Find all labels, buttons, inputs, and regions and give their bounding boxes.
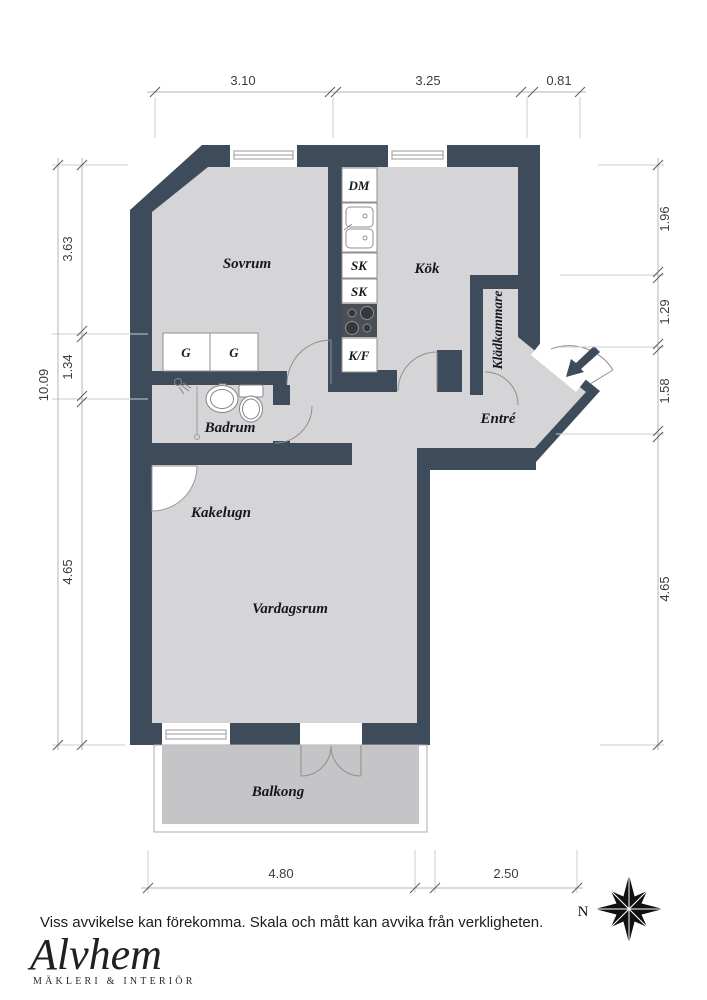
- label-sk1: SK: [351, 258, 368, 273]
- compass-north-label: N: [578, 904, 589, 920]
- stove-icon: [342, 304, 377, 337]
- floorplan-page: Sovrum Kök Badrum Entré Vardagsrum Balko…: [0, 0, 707, 1000]
- wall-bedroom-kitchen: [328, 167, 342, 392]
- dim-left-2: 1.34: [60, 354, 75, 379]
- balcony-door-opening: [300, 723, 362, 745]
- bedroom-window-icon: [230, 145, 297, 167]
- label-g2: G: [229, 345, 239, 360]
- dim-left-1: 3.63: [60, 236, 75, 261]
- dim-bottom-1: 4.80: [268, 866, 293, 881]
- label-sk2: SK: [351, 284, 368, 299]
- compass-rose: N: [578, 875, 663, 943]
- badrum-door-opening: [273, 405, 290, 441]
- dim-left-total: 10.09: [36, 369, 51, 402]
- kitchen-sink-icon: [342, 203, 377, 252]
- wall-kladkammare-top: [470, 275, 540, 289]
- label-entre: Entré: [479, 411, 516, 427]
- livingroom-window-icon: [162, 723, 230, 745]
- label-kakelugn: Kakelugn: [190, 505, 251, 521]
- wall-entre-bottom: [417, 448, 536, 470]
- label-vardagsrum: Vardagsrum: [252, 601, 328, 617]
- dim-top-3: 0.81: [546, 73, 571, 88]
- label-balkong: Balkong: [251, 784, 305, 800]
- brand-logo: Alvhem: [27, 930, 162, 979]
- label-g1: G: [181, 345, 191, 360]
- wall-badrum-top: [152, 371, 287, 385]
- wall-kitchen-south: [330, 370, 397, 392]
- wall-entre-jamb: [437, 350, 462, 392]
- wardrobes: [163, 333, 258, 371]
- dim-right-4: 4.65: [657, 576, 672, 601]
- label-badrum: Badrum: [204, 420, 256, 436]
- dim-right-1: 1.96: [657, 206, 672, 231]
- wall-livingroom-top-left: [152, 443, 352, 465]
- brand-tagline: MÄKLERI & INTERIÖR: [33, 975, 196, 987]
- dim-right-2: 1.29: [657, 299, 672, 324]
- footer: Viss avvikelse kan förekomma. Skala och …: [27, 914, 543, 987]
- wall-kladkammare-left: [470, 289, 483, 395]
- dim-right-3: 1.58: [657, 378, 672, 403]
- label-dm: DM: [348, 178, 370, 193]
- compass-facets: [595, 875, 663, 943]
- label-kf: K/F: [348, 348, 370, 363]
- dim-top-2: 3.25: [415, 73, 440, 88]
- kitchen-window-icon: [388, 145, 447, 167]
- floorplan-drawing: Sovrum Kök Badrum Entré Vardagsrum Balko…: [0, 0, 707, 1000]
- disclaimer-text: Viss avvikelse kan förekomma. Skala och …: [40, 914, 543, 931]
- label-kladkammare: Klädkammare: [490, 291, 505, 371]
- dim-bottom-2: 2.50: [493, 866, 518, 881]
- label-kok: Kök: [413, 261, 440, 277]
- toilet-icon: [239, 385, 263, 422]
- dim-top-1: 3.10: [230, 73, 255, 88]
- dim-left-3: 4.65: [60, 559, 75, 584]
- label-sovrum: Sovrum: [223, 256, 271, 272]
